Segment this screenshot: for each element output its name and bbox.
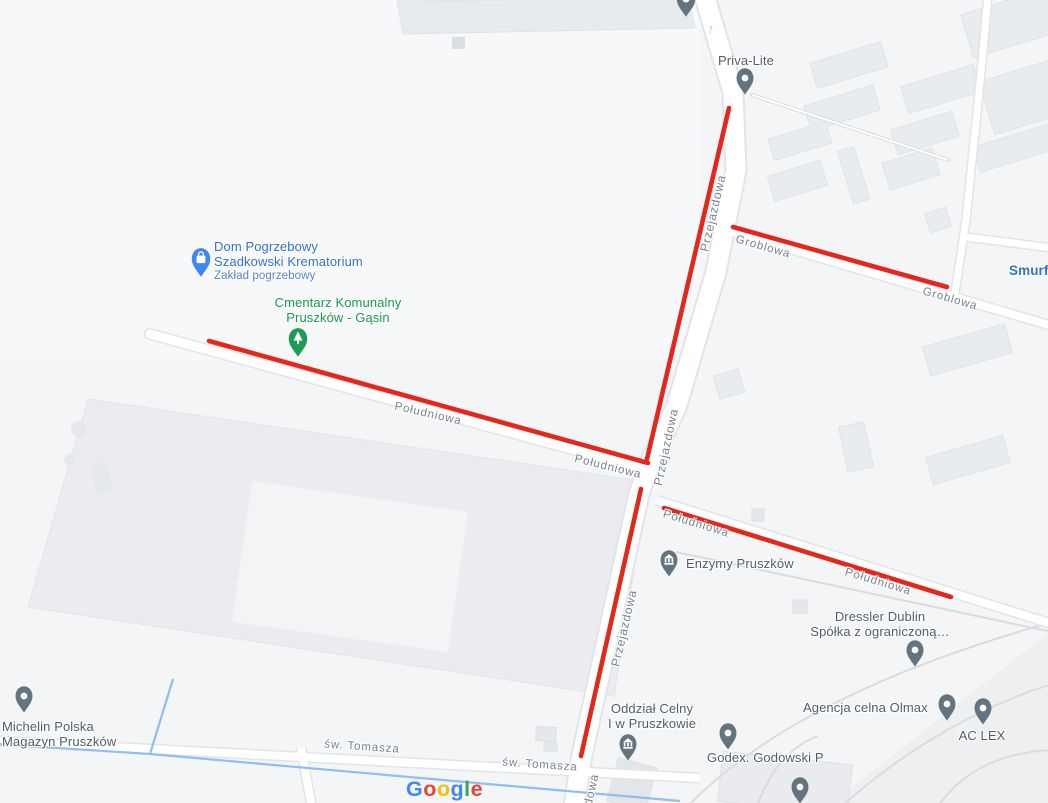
poi-label-dom-pogrzebowy-szadkowski[interactable]: Dom PogrzebowySzadkowski KrematoriumZakł…: [214, 239, 363, 284]
street-label-po-udniowa: Południowa: [844, 566, 913, 597]
map-canvas[interactable]: Priva-LiteDom PogrzebowySzadkowski Krema…: [0, 0, 1048, 803]
poi-label-line: Spółka z ograniczoną…: [810, 624, 949, 639]
poi-label-priva-lite[interactable]: Priva-Lite: [718, 53, 774, 68]
map-pin-agencja-celna-olmax[interactable]: [936, 693, 958, 726]
poi-label-line: Michelin Polska: [2, 719, 116, 734]
poi-label-enzymy-pruszkow[interactable]: Enzymy Pruszków: [686, 556, 794, 571]
street-label-przejazdowa: Przejazdowa: [608, 588, 639, 668]
street-label-po-udniowa: Południowa: [662, 508, 731, 539]
poi-label-line: AC LEX: [959, 728, 1006, 743]
poi-label-line: Godex. Godowski P: [707, 750, 824, 765]
google-logo[interactable]: Google: [406, 778, 483, 800]
map-pin-michelin-polska[interactable]: [13, 685, 35, 718]
street-label-po-udniowa: Południowa: [573, 453, 642, 481]
google-logo-letter: G: [406, 777, 423, 801]
poi-label-line: Smurfi: [1009, 263, 1048, 278]
map-pin-dressler-dublin[interactable]: [904, 639, 926, 672]
poi-label-line: Pruszków - Gąsin: [275, 310, 402, 325]
map-pin-oddzial-celny[interactable]: [617, 733, 639, 766]
poi-label-line: Enzymy Pruszków: [686, 556, 794, 571]
map-pin-enzymy-pruszkow[interactable]: [658, 549, 680, 582]
google-logo-letter: g: [451, 777, 465, 801]
poi-label-line: Priva-Lite: [718, 53, 774, 68]
poi-label-line: Dom Pogrzebowy: [214, 239, 363, 254]
street-label--w-tomasza: św. Tomasza: [324, 738, 400, 755]
poi-label-line: Oddział Celny: [608, 701, 696, 716]
street-label-groblowa: Groblowa: [921, 285, 979, 312]
street-label--w-tomasza: św. Tomasza: [502, 756, 578, 773]
google-logo-letter: o: [423, 777, 437, 801]
map-pin-pin-top-partial[interactable]: [674, 0, 698, 22]
map-pin-priva-lite[interactable]: [734, 67, 756, 100]
poi-label-dressler-dublin[interactable]: Dressler DublinSpółka z ograniczoną…: [810, 609, 949, 639]
street-label-przejazdowa: Przejazdowa: [570, 772, 601, 803]
google-logo-letter: e: [471, 777, 483, 801]
poi-label-line: Szadkowski Krematorium: [214, 254, 363, 269]
street-label-po-udniowa: Południowa: [393, 400, 462, 427]
poi-label-agencja-celna-olmax[interactable]: Agencja celna Olmax: [803, 700, 928, 715]
poi-label-oddzial-celny[interactable]: Oddział CelnyI w Pruszkowie: [608, 701, 696, 731]
poi-label-line: Dressler Dublin: [810, 609, 949, 624]
map-pin-dom-pogrzebowy-szadkowski[interactable]: [189, 246, 213, 283]
map-pin-ac-lex[interactable]: [972, 697, 994, 730]
poi-label-smurfit[interactable]: Smurfi: [1009, 263, 1048, 278]
poi-label-line: I w Pruszkowie: [608, 716, 696, 731]
labels-layer: Priva-LiteDom PogrzebowySzadkowski Krema…: [0, 0, 1048, 803]
poi-label-michelin-polska[interactable]: Michelin PolskaMagazyn Pruszków: [2, 719, 116, 749]
google-logo-letter: o: [437, 777, 451, 801]
poi-label-cmentarz-komunalny[interactable]: Cmentarz KomunalnyPruszków - Gąsin: [275, 295, 402, 325]
poi-label-line: Agencja celna Olmax: [803, 700, 928, 715]
poi-label-line: Magazyn Pruszków: [2, 734, 116, 749]
poi-label-ac-lex[interactable]: AC LEX: [959, 728, 1006, 743]
poi-label-godex-godowski[interactable]: Godex. Godowski P: [707, 750, 824, 765]
map-pin-godex-pin-2[interactable]: [789, 776, 811, 803]
street-label-przejazdowa: Przejazdowa: [651, 407, 681, 487]
poi-label-line: Cmentarz Komunalny: [275, 295, 402, 310]
street-label-groblowa: Groblowa: [734, 233, 792, 260]
street-label-przejazdowa: Przejazdowa: [697, 173, 728, 253]
poi-sublabel: Zakład pogrzebowy: [214, 269, 363, 284]
map-pin-cmentarz-komunalny[interactable]: [286, 326, 310, 363]
